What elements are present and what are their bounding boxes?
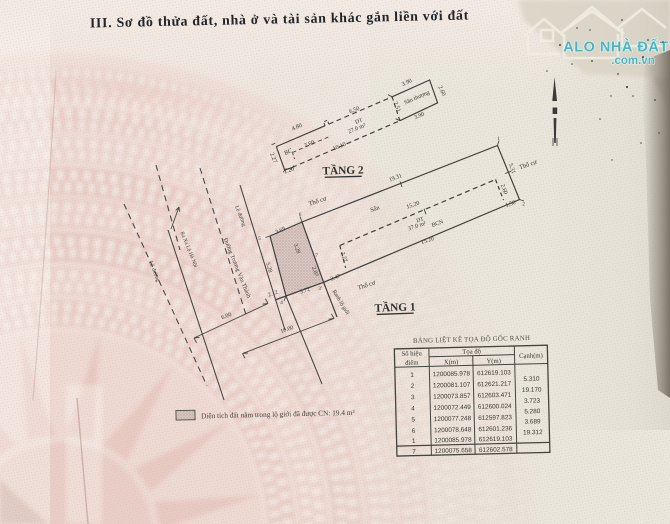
svg-text:1: 1: [410, 372, 414, 379]
svg-text:4: 4: [411, 405, 415, 412]
svg-text:7: 7: [412, 449, 416, 456]
svg-text:1200081.107: 1200081.107: [433, 382, 471, 390]
svg-text:1200073.857: 1200073.857: [433, 393, 471, 401]
svg-text:TẦNG 1: TẦNG 1: [374, 300, 416, 314]
svg-text:3.723: 3.723: [524, 397, 541, 404]
svg-text:612621.217: 612621.217: [477, 381, 511, 389]
svg-text:6: 6: [412, 428, 416, 435]
svg-text:.com.vn: .com.vn: [611, 55, 654, 67]
svg-text:Tọa độ: Tọa độ: [462, 348, 482, 355]
svg-text:1: 1: [412, 438, 416, 445]
svg-text:Số hiệu: Số hiệu: [401, 350, 422, 358]
svg-text:2: 2: [522, 202, 525, 208]
svg-text:1200085.978: 1200085.978: [434, 437, 472, 445]
svg-text:19.170: 19.170: [522, 387, 542, 394]
svg-text:X(m): X(m): [444, 359, 459, 366]
svg-text:5.310: 5.310: [523, 376, 540, 383]
svg-text:612597.823: 612597.823: [478, 414, 512, 422]
svg-text:1200078.648: 1200078.648: [434, 426, 472, 434]
svg-text:4: 4: [280, 300, 283, 306]
svg-text:6: 6: [299, 212, 302, 218]
svg-text:Cạnh(m): Cạnh(m): [519, 352, 543, 360]
svg-text:1200077.248: 1200077.248: [434, 415, 472, 423]
svg-text:2: 2: [411, 383, 415, 390]
svg-text:điểm: điểm: [405, 360, 419, 367]
svg-text:612619.103: 612619.103: [479, 436, 513, 444]
svg-text:612602.578: 612602.578: [479, 446, 513, 454]
svg-text:ALO NHÀ ĐẤT: ALO NHÀ ĐẤT: [563, 39, 668, 56]
svg-text:TẦNG 2: TẦNG 2: [322, 163, 364, 177]
svg-text:3: 3: [411, 394, 415, 401]
svg-text:612603.471: 612603.471: [478, 392, 512, 400]
svg-text:612619.103: 612619.103: [477, 369, 511, 377]
svg-text:5: 5: [258, 236, 261, 242]
svg-text:Y(m): Y(m): [486, 358, 501, 365]
svg-text:1200072.449: 1200072.449: [433, 404, 471, 412]
svg-text:3.689: 3.689: [524, 418, 541, 425]
svg-text:1: 1: [497, 136, 500, 142]
svg-text:5: 5: [411, 417, 415, 424]
svg-text:1200075.658: 1200075.658: [435, 447, 473, 455]
svg-text:7: 7: [315, 253, 318, 259]
svg-text:5.280: 5.280: [524, 408, 541, 415]
svg-text:19.312: 19.312: [523, 429, 543, 436]
svg-text:1200085.978: 1200085.978: [433, 370, 471, 378]
svg-text:612600.024: 612600.024: [478, 403, 512, 411]
svg-text:612601.236: 612601.236: [478, 425, 512, 433]
svg-text:3': 3': [318, 286, 322, 292]
